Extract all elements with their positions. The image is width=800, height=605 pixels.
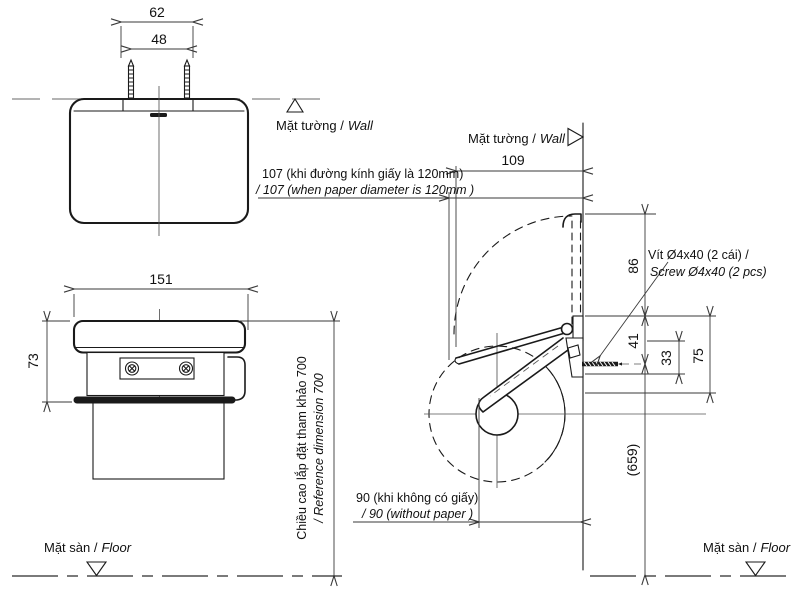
dim-86-label: 86 [625, 258, 641, 274]
wall-label-left-vi: Mặt tường / [276, 118, 344, 133]
dim-90: 90 (khi không có giấy) / 90 (without pap… [353, 398, 581, 528]
dim-48: 48 [131, 31, 187, 49]
dim-109-label: 109 [501, 152, 525, 168]
floor-datum-icon [87, 562, 106, 576]
wall-label-right-en: Wall [540, 131, 566, 146]
dim-659-label: (659) [624, 444, 640, 477]
front-view: 151 73 [25, 271, 248, 479]
reference-height-dim: Chiều cao lắp đặt tham khảo 700 / Refere… [240, 321, 340, 576]
screw-icon [129, 60, 134, 98]
wall-datum-icon [568, 129, 583, 146]
dim-33-label: 33 [658, 350, 674, 366]
screw-note-en: Screw Ø4x40 (2 pcs) [650, 265, 767, 279]
floor-label-left-vi: Mặt sàn / [44, 540, 98, 555]
reference-height-vi: Chiều cao lắp đặt tham khảo 700 [294, 356, 309, 540]
paper-sheet [93, 399, 224, 479]
floor-label-right-vi: Mặt sàn / [703, 540, 757, 555]
roll-front-arc [541, 362, 565, 462]
floor-label-right-en: Floor [760, 540, 790, 555]
dim-41-label: 41 [625, 333, 641, 349]
floor-label-right: Mặt sàn /Floor [703, 540, 791, 555]
dim-73-label: 73 [25, 353, 41, 369]
floor: Mặt sàn /Floor Mặt sàn /Floor [12, 540, 795, 576]
reference-height-en: / Reference dimension 700 [312, 373, 326, 523]
dim-75-label: 75 [690, 348, 706, 364]
note-90-vi: 90 (khi không có giấy) [356, 491, 478, 505]
logo-mark [150, 113, 167, 117]
note-107-en: / 107 (when paper diameter is 120mm ) [255, 183, 474, 197]
wall-datum-icon [287, 99, 303, 112]
cover-swing-arc [454, 216, 572, 334]
floor-datum-icon [746, 562, 765, 576]
dim-62-label: 62 [149, 4, 165, 20]
hinge-pin [562, 324, 573, 335]
screw-note-vi: Vít Ø4x40 (2 cái) / [648, 248, 749, 262]
side-view: Mặt tường /Wall [255, 123, 767, 575]
screw-icon [126, 362, 139, 375]
top-view: 62 48 Mặt tường /Wall [12, 4, 374, 236]
dim-151-label: 151 [149, 271, 173, 287]
drawing-page: 62 48 Mặt tường /Wall 151 73 [0, 0, 800, 605]
wall-label-left: Mặt tường /Wall [276, 118, 374, 133]
technical-drawing: 62 48 Mặt tường /Wall 151 73 [0, 0, 800, 605]
note-90-en: / 90 (without paper ) [361, 507, 473, 521]
dim-48-label: 48 [151, 31, 167, 47]
dim-73: 73 [25, 321, 72, 402]
roll-bar-side [479, 338, 568, 412]
wall-label-right: Mặt tường /Wall [468, 131, 566, 146]
screw-icon [582, 362, 645, 366]
wall-label-right-vi: Mặt tường / [468, 131, 536, 146]
roll-bar-hook [228, 357, 245, 400]
wall-label-left-en: Wall [348, 118, 374, 133]
floor-label-left: Mặt sàn /Floor [44, 540, 132, 555]
dim-109: 109 [456, 152, 583, 347]
dim-107: 107 (khi đường kính giấy là 120mm) / 107… [255, 167, 583, 360]
floor-label-left-en: Floor [101, 540, 131, 555]
screw-icon [180, 362, 193, 375]
cover-open-position [563, 214, 581, 331]
note-107-vi: 107 (khi đường kính giấy là 120mm) [262, 167, 463, 181]
screw-icon [185, 60, 190, 98]
